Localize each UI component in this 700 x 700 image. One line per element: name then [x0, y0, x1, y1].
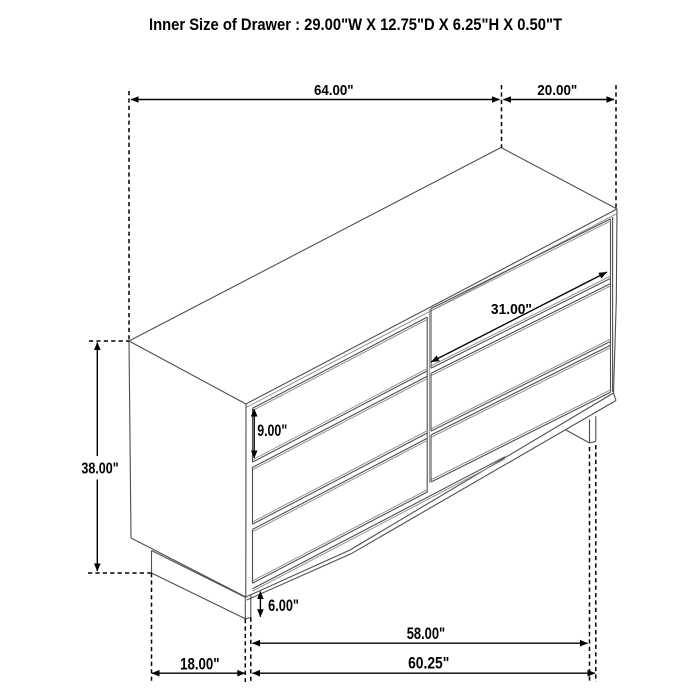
svg-text:60.25": 60.25": [408, 654, 449, 673]
svg-text:38.00": 38.00": [81, 460, 118, 477]
svg-text:64.00": 64.00": [314, 82, 354, 99]
svg-text:20.00": 20.00": [537, 82, 577, 99]
svg-text:9.00": 9.00": [257, 422, 287, 440]
svg-text:18.00": 18.00": [180, 655, 220, 674]
svg-text:58.00": 58.00": [407, 624, 446, 643]
svg-text:6.00": 6.00": [268, 596, 299, 615]
svg-text:31.00": 31.00": [491, 301, 532, 318]
svg-text:Inner Size of Drawer : 29.00"W: Inner Size of Drawer : 29.00"W X 12.75"D…: [149, 15, 562, 34]
